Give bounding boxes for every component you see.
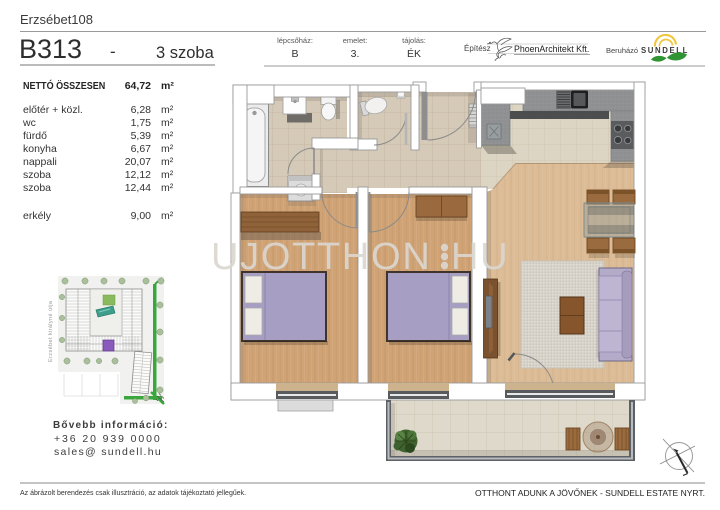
svg-text:Erzsébet királyné útja: Erzsébet királyné útja bbox=[48, 300, 54, 362]
svg-text:HU: HU bbox=[451, 236, 509, 278]
svg-text:UJOTTHON: UJOTTHON bbox=[211, 236, 431, 278]
